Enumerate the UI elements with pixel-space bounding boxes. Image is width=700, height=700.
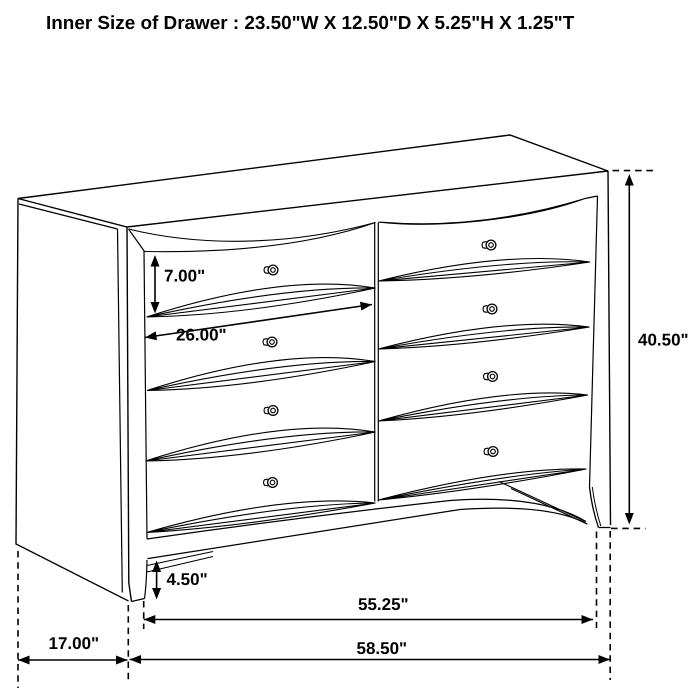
svg-text:55.25": 55.25" xyxy=(358,595,409,614)
svg-text:17.00": 17.00" xyxy=(49,634,100,653)
svg-text:26.00": 26.00" xyxy=(176,326,227,345)
svg-text:7.00": 7.00" xyxy=(164,267,205,286)
svg-text:4.50": 4.50" xyxy=(167,570,208,589)
svg-text:40.50": 40.50" xyxy=(638,331,689,350)
svg-text:Inner Size of Drawer : 23.50"W: Inner Size of Drawer : 23.50"W X 12.50"D… xyxy=(46,13,575,34)
svg-text:58.50": 58.50" xyxy=(357,639,408,658)
